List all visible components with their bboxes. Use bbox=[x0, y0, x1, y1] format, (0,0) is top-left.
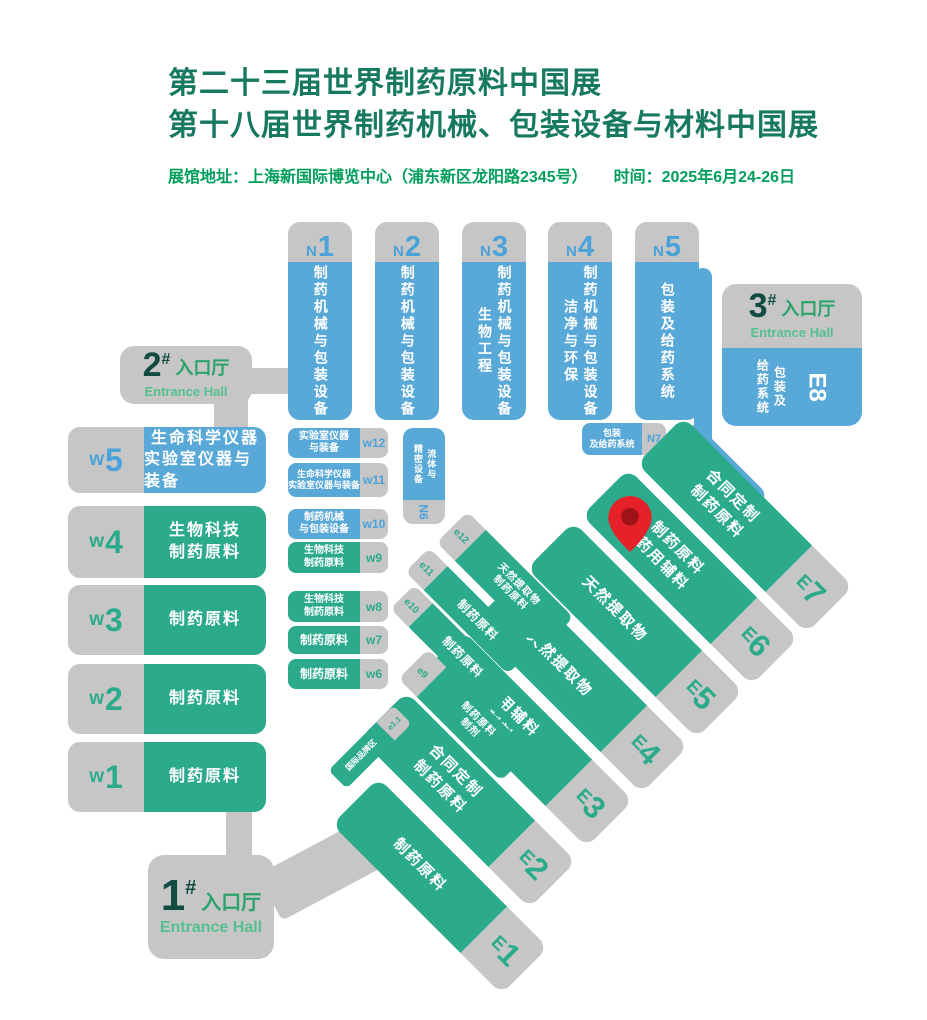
hall-n2-number: 2 bbox=[405, 234, 421, 260]
hall-w5-category: 生命科学仪器实验室仪器与装备 bbox=[144, 427, 266, 493]
event-dates: 时间：2025年6月24-26日 bbox=[614, 163, 795, 187]
hall-n1-category: 制药机械与包装设备 bbox=[309, 265, 331, 418]
hall-e8-label: E8 bbox=[803, 372, 831, 401]
venue-address: 展馆地址：上海新国际博览中心（浦东新区龙阳路2345号） bbox=[168, 163, 588, 187]
hall-w1-label: w1 bbox=[68, 742, 144, 812]
entrance-hall-1: 1 # 入口厅 Entrance Hall bbox=[148, 855, 274, 959]
hall-n5: N5 包装及给药系统 bbox=[635, 222, 699, 420]
entrance-1-label-cn: 入口厅 bbox=[201, 886, 261, 915]
hall-n3-number: 3 bbox=[492, 234, 508, 260]
hall-w6: 制药原料 w6 bbox=[288, 659, 388, 689]
hall-w1-category: 制药原料 bbox=[144, 742, 266, 812]
entrance-hall-3: 3 # 入口厅 Entrance Hall bbox=[722, 284, 862, 348]
entrance-2-hash: # bbox=[162, 351, 171, 369]
hall-n6-label: N6 bbox=[417, 504, 431, 519]
entrance-3-label-en: Entrance Hall bbox=[750, 325, 833, 340]
hall-n4-prefix: N bbox=[566, 243, 577, 260]
hall-e8-category: 包装及 给药系统 bbox=[752, 359, 788, 415]
hall-n1-number: 1 bbox=[318, 234, 334, 260]
hall-n4-label: N4 bbox=[548, 222, 612, 262]
hall-w6-label: w6 bbox=[360, 659, 388, 689]
entrance-1-hash: # bbox=[185, 877, 196, 900]
hall-n1-label: N1 bbox=[288, 222, 352, 262]
hall-w11-category: 生命科学仪器实验室仪器与装备 bbox=[288, 463, 360, 497]
hall-w3: w3 制药原料 bbox=[68, 585, 266, 655]
hall-n6-category: 流体与精密设备 bbox=[410, 444, 439, 484]
hall-n1-prefix: N bbox=[306, 243, 317, 260]
hall-n4-category: 制药机械与包装设备洁净与环保 bbox=[560, 265, 601, 418]
entrance-3-label-cn: 入口厅 bbox=[781, 295, 835, 321]
hall-w6-category: 制药原料 bbox=[288, 659, 360, 689]
hall-n5-prefix: N bbox=[653, 243, 664, 260]
entrance-3-number: 3 bbox=[749, 292, 768, 321]
venue-info: 展馆地址：上海新国际博览中心（浦东新区龙阳路2345号） 时间：2025年6月2… bbox=[168, 163, 795, 187]
hall-w8-label: w8 bbox=[360, 591, 388, 622]
hall-w2: w2 制药原料 bbox=[68, 664, 266, 734]
hall-w12: 实验室仪器与装备 w12 bbox=[288, 428, 388, 458]
entrance-1-label-en: Entrance Hall bbox=[160, 919, 262, 937]
hall-w3-category: 制药原料 bbox=[144, 585, 266, 655]
hall-n5-category: 包装及给药系统 bbox=[656, 282, 678, 401]
hall-n7-category: 包装及给药系统 bbox=[582, 423, 642, 455]
hall-n2-label: N2 bbox=[375, 222, 439, 262]
page-title-line1: 第二十三届世界制药原料中国展 bbox=[168, 58, 602, 102]
hall-w2-label: w2 bbox=[68, 664, 144, 734]
hall-w2-category: 制药原料 bbox=[144, 664, 266, 734]
hall-n3-prefix: N bbox=[480, 243, 491, 260]
hall-w7-category: 制药原料 bbox=[288, 626, 360, 654]
hall-w4-category: 生物科技制药原料 bbox=[144, 506, 266, 578]
hall-e8: 包装及 给药系统 E8 bbox=[722, 348, 862, 426]
hall-n6: 流体与精密设备 N6 bbox=[403, 428, 445, 524]
hall-n4-number: 4 bbox=[578, 234, 594, 260]
hall-w9: 生物科技制药原料 w9 bbox=[288, 542, 388, 573]
hall-n5-number: 5 bbox=[665, 234, 681, 260]
hall-n4: N4 制药机械与包装设备洁净与环保 bbox=[548, 222, 612, 420]
hall-w7-label: w7 bbox=[360, 626, 388, 654]
hall-w5-label: w5 bbox=[68, 427, 144, 493]
hall-w12-label: w12 bbox=[360, 428, 388, 458]
hall-w9-label: w9 bbox=[360, 542, 388, 573]
hall-n1: N1 制药机械与包装设备 bbox=[288, 222, 352, 420]
hall-w10-category: 制药机械与包装设备 bbox=[288, 509, 360, 539]
entrance-1-number: 1 bbox=[161, 877, 185, 914]
hall-n3: N3 制药机械与包装设备生物工程 bbox=[462, 222, 526, 420]
hall-w10-label: w10 bbox=[360, 509, 388, 539]
corridor-w1-entrance1 bbox=[226, 808, 252, 858]
hall-w8-category: 生物科技制药原料 bbox=[288, 591, 360, 622]
entrance-2-number: 2 bbox=[143, 351, 162, 380]
hall-w9-category: 生物科技制药原料 bbox=[288, 542, 360, 573]
hall-w3-label: w3 bbox=[68, 585, 144, 655]
hall-w12-category: 实验室仪器与装备 bbox=[288, 428, 360, 458]
entrance-2-label-cn: 入口厅 bbox=[175, 354, 229, 380]
hall-n5-label: N5 bbox=[635, 222, 699, 262]
location-pin-icon bbox=[606, 494, 654, 554]
hall-n2-prefix: N bbox=[393, 243, 404, 260]
hall-n3-category: 制药机械与包装设备生物工程 bbox=[474, 265, 515, 418]
hall-w7: 制药原料 w7 bbox=[288, 626, 388, 654]
hall-w4-label: w4 bbox=[68, 506, 144, 578]
hall-n2-category: 制药机械与包装设备 bbox=[396, 265, 418, 418]
hall-n2: N2 制药机械与包装设备 bbox=[375, 222, 439, 420]
floor-plan-map: 第二十三届世界制药原料中国展 第十八届世界制药机械、包装设备与材料中国展 展馆地… bbox=[0, 0, 927, 1020]
page-title-line2: 第十八届世界制药机械、包装设备与材料中国展 bbox=[168, 100, 819, 144]
hall-w1: w1 制药原料 bbox=[68, 742, 266, 812]
entrance-2-label-en: Entrance Hall bbox=[144, 384, 227, 399]
entrance-3-hash: # bbox=[768, 292, 777, 310]
hall-w11: 生命科学仪器实验室仪器与装备 w11 bbox=[288, 463, 388, 497]
hall-w8: 生物科技制药原料 w8 bbox=[288, 591, 388, 622]
hall-w10: 制药机械与包装设备 w10 bbox=[288, 509, 388, 539]
hall-w5: w5 生命科学仪器实验室仪器与装备 bbox=[68, 427, 266, 493]
hall-n3-label: N3 bbox=[462, 222, 526, 262]
entrance-hall-2: 2 # 入口厅 Entrance Hall bbox=[120, 346, 252, 404]
hall-w4: w4 生物科技制药原料 bbox=[68, 506, 266, 578]
hall-w11-label: w11 bbox=[360, 463, 388, 497]
